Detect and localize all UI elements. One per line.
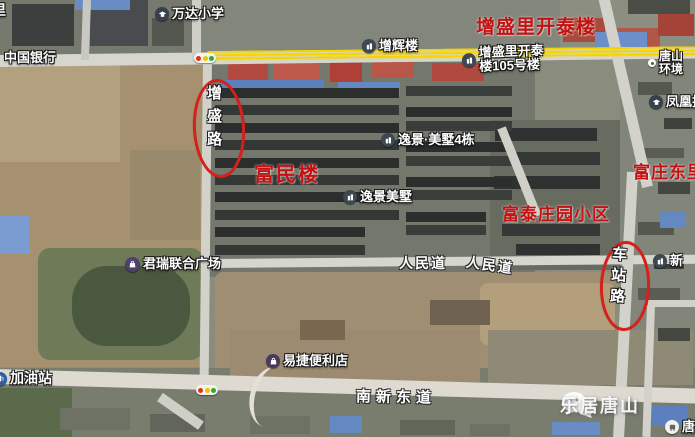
building-row	[215, 245, 365, 255]
poi-label: 唐山 环境	[659, 50, 683, 76]
building	[372, 62, 414, 78]
building	[660, 212, 686, 228]
building	[628, 0, 690, 14]
building-row	[406, 190, 512, 200]
poi-label-line2: 楼105号楼	[479, 58, 544, 75]
poi-label: 增辉楼	[379, 39, 418, 53]
poi-label: 新	[670, 254, 683, 268]
bus-icon	[665, 420, 679, 434]
building-row	[406, 86, 512, 96]
building	[274, 64, 320, 81]
clipped-label-fragment: 里	[0, 3, 6, 18]
building	[502, 224, 600, 236]
building	[0, 216, 30, 254]
poi-zenghui-building[interactable]: 增辉楼	[362, 39, 418, 53]
terrain-patch	[72, 266, 190, 346]
building-row	[406, 107, 512, 117]
building	[658, 182, 690, 194]
building	[228, 62, 268, 82]
fuel-icon	[0, 372, 7, 386]
building	[300, 320, 345, 340]
road-label-nanxin-east: 南新东道	[356, 385, 436, 407]
poi-fenghuang-tech[interactable]: 凤凰技	[649, 95, 695, 109]
building	[552, 422, 600, 435]
poi-label-line2: 环境	[659, 63, 683, 76]
road-label-renmin-1: 人民道	[399, 253, 447, 273]
poi-label: 万达小学	[172, 7, 224, 21]
annotation-futai-estate: 富泰庄园小区	[502, 200, 610, 225]
watermark: 乐居唐山	[560, 390, 596, 420]
building-icon	[362, 39, 376, 53]
building-row	[406, 121, 512, 131]
road-segment	[648, 300, 695, 307]
building-row	[406, 177, 512, 187]
poi-wanda-school[interactable]: 万达小学	[155, 7, 224, 21]
shopping-icon	[266, 354, 280, 368]
poi-yijie-store[interactable]: 易捷便利店	[266, 354, 348, 368]
school-icon	[649, 95, 663, 109]
traffic-light-icon	[196, 385, 218, 395]
annotation-fumin-building: 富民楼	[254, 158, 320, 187]
building	[330, 416, 362, 433]
terrain-patch	[130, 150, 200, 240]
building	[12, 4, 74, 46]
road-label-zengsheng: 增盛路	[203, 85, 224, 154]
poi-label: 唐	[682, 420, 695, 434]
building-row	[215, 210, 399, 220]
poi-xin-building[interactable]: 新	[653, 254, 683, 268]
building-icon	[343, 190, 357, 204]
building	[400, 420, 455, 435]
building	[516, 244, 600, 255]
poi-label: 加油站	[10, 371, 52, 386]
poi-bank-of-china[interactable]: 中国银行	[4, 51, 56, 65]
watermark-text: 乐居唐山	[560, 392, 640, 418]
poi-label: 增盛里开泰 楼105号楼	[479, 44, 545, 75]
building-row	[215, 227, 365, 237]
poi-kaitai-105[interactable]: 增盛里开泰 楼105号楼	[462, 44, 545, 75]
poi-label: 君瑞联合广场	[143, 257, 221, 271]
poi-dot-icon	[648, 59, 656, 67]
building-icon	[462, 53, 476, 67]
poi-yijing-meishu[interactable]: 逸景美墅	[343, 190, 412, 204]
road-label-chezhan: 车站路	[605, 245, 629, 309]
building-row	[406, 156, 512, 166]
poi-label: 易捷便利店	[283, 354, 348, 368]
building	[658, 328, 690, 341]
annotation-kaitai-building: 增盛里开泰楼	[476, 12, 596, 39]
building	[508, 152, 600, 165]
school-icon	[155, 7, 169, 21]
building-row	[215, 88, 399, 98]
building	[664, 118, 692, 129]
poi-yijing-meishu-4[interactable]: 逸景·美墅4栋	[381, 133, 475, 147]
building-icon	[653, 254, 667, 268]
poi-junrui-plaza[interactable]: 君瑞联合广场	[125, 257, 221, 272]
building-row	[406, 212, 486, 222]
building	[470, 424, 510, 436]
poi-tangshan-environment[interactable]: 唐山 环境	[648, 50, 683, 76]
building	[330, 61, 362, 82]
poi-label: 凤凰技	[666, 95, 695, 109]
building-icon	[381, 133, 395, 147]
building	[658, 14, 694, 36]
terrain-patch	[0, 62, 120, 162]
poi-tang-corner[interactable]: 唐	[665, 420, 695, 434]
building-row	[406, 225, 486, 235]
poi-label: 逸景·美墅4栋	[398, 133, 475, 147]
building	[642, 148, 684, 158]
building	[152, 18, 184, 46]
traffic-light-icon	[194, 53, 216, 63]
poi-label: 逸景美墅	[360, 190, 412, 204]
shopping-icon	[125, 257, 140, 272]
building	[60, 408, 130, 430]
building	[430, 300, 490, 325]
annotation-fuzhuang-dongli: 富庄东里	[633, 158, 695, 183]
poi-label: 中国银行	[4, 51, 56, 65]
poi-gas-station[interactable]: 加油站	[0, 371, 52, 386]
satellite-map-canvas[interactable]: 增盛路 车站路 人民道 人民道 南新东道 增盛里开泰楼 富民楼 富庄东里 富泰庄…	[0, 0, 695, 437]
